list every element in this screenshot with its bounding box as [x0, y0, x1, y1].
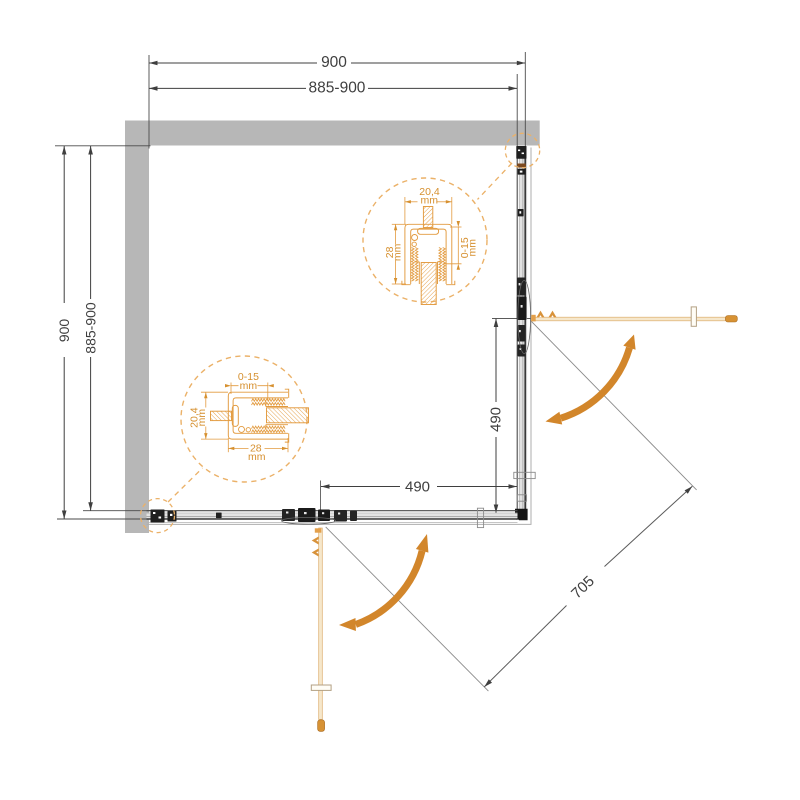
svg-text:885-900: 885-900	[309, 80, 366, 97]
svg-text:490: 490	[488, 407, 505, 432]
svg-text:mm: mm	[240, 380, 258, 392]
svg-text:mm: mm	[466, 239, 478, 257]
svg-text:mm: mm	[392, 243, 404, 261]
svg-text:885-900: 885-900	[83, 302, 99, 354]
svg-text:mm: mm	[421, 195, 439, 207]
svg-text:mm: mm	[196, 409, 208, 427]
svg-text:mm: mm	[248, 451, 266, 463]
svg-text:900: 900	[56, 319, 72, 343]
svg-text:900: 900	[321, 54, 347, 71]
svg-text:490: 490	[405, 479, 430, 496]
